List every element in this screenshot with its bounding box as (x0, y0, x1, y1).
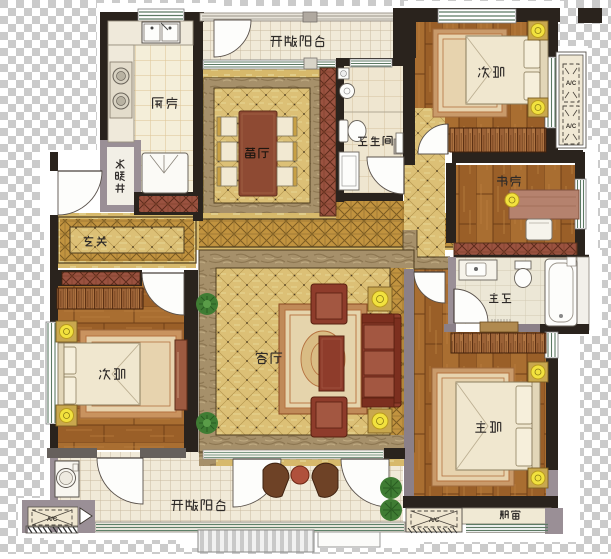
svg-text:A/C: A/C (566, 124, 577, 130)
svg-text:A/C: A/C (429, 518, 440, 524)
svg-text:A/C: A/C (566, 81, 577, 87)
svg-text:A/C: A/C (47, 517, 58, 523)
